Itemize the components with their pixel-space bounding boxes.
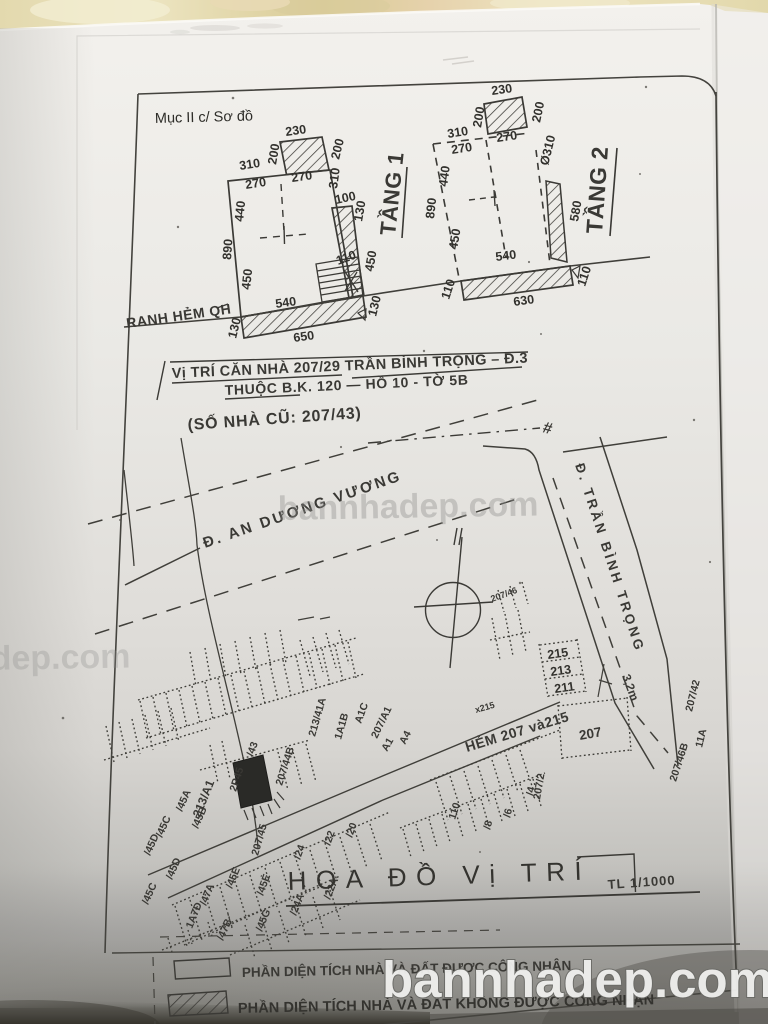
svg-text:211: 211 (553, 679, 575, 696)
svg-text:440: 440 (436, 165, 453, 188)
svg-text:213: 213 (549, 662, 572, 679)
svg-text:890: 890 (423, 197, 439, 219)
svg-text:bannhadep.com: bannhadep.com (0, 637, 131, 680)
svg-text:270: 270 (495, 128, 518, 145)
svg-text:215: 215 (546, 645, 569, 662)
svg-text:540: 540 (495, 248, 517, 264)
svg-text:bannhadep.com: bannhadep.com (382, 951, 768, 1008)
svg-text:Mục II c/ Sơ đồ: Mục II c/ Sơ đồ (155, 108, 254, 127)
svg-text:310: 310 (326, 167, 343, 190)
svg-text:230: 230 (490, 81, 513, 98)
svg-text:bannhadep.com: bannhadep.com (277, 485, 538, 528)
svg-text:650: 650 (292, 328, 315, 345)
svg-text:630: 630 (512, 292, 535, 309)
svg-text:230: 230 (284, 122, 307, 139)
svg-text:450: 450 (239, 268, 255, 290)
svg-text:440: 440 (232, 200, 248, 222)
svg-text:270: 270 (290, 168, 313, 185)
svg-text:890: 890 (220, 238, 235, 260)
